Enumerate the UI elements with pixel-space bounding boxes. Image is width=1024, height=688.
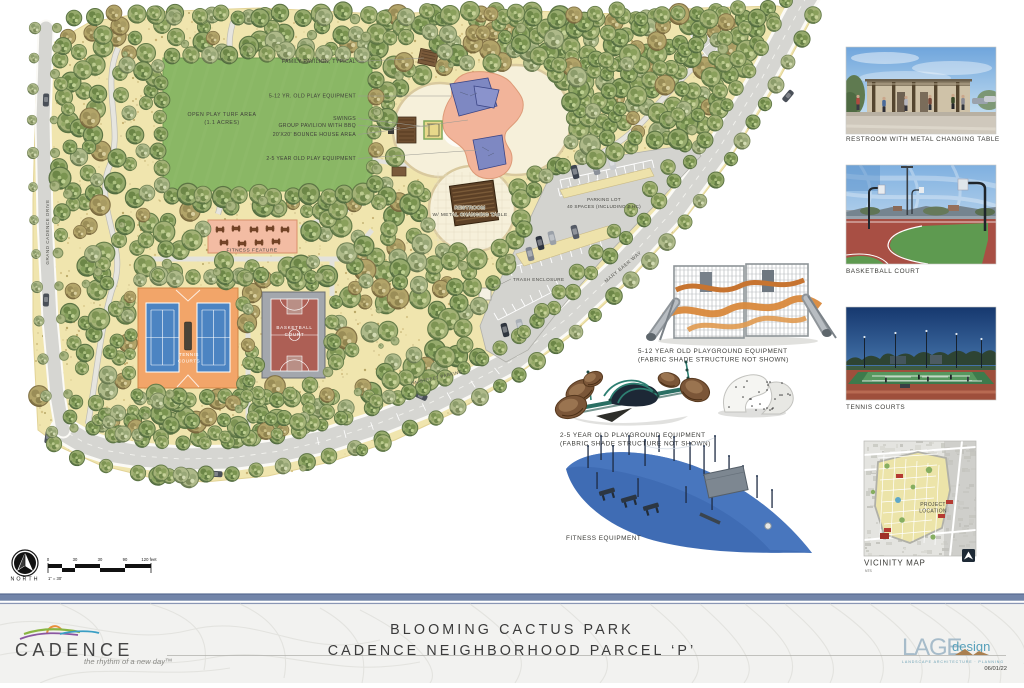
svg-text:PROJECT: PROJECT [920,502,945,508]
svg-text:the rhythm of a new day™: the rhythm of a new day™ [84,657,173,666]
svg-text:1” = 30’: 1” = 30’ [48,576,62,581]
svg-text:BASKETBALL: BASKETBALL [276,325,312,330]
svg-text:RESTROOM WITH METAL CHANGING T: RESTROOM WITH METAL CHANGING TABLE [846,136,1000,143]
svg-text:2-5 YEAR OLD PLAY EQUIPMENT: 2-5 YEAR OLD PLAY EQUIPMENT [266,156,356,162]
svg-text:5-12 YR. OLD PLAY EQUIPMENT: 5-12 YR. OLD PLAY EQUIPMENT [269,94,357,100]
svg-text:GRAND CADENCE DRIVE: GRAND CADENCE DRIVE [45,199,50,264]
svg-text:NTS: NTS [865,569,873,573]
svg-text:LANDSCAPE ARCHITECTURE · PLANN: LANDSCAPE ARCHITECTURE · PLANNING [902,660,1004,664]
svg-text:FAMILY PAVILION, TYPICAL: FAMILY PAVILION, TYPICAL [282,59,356,65]
svg-text:120 feet: 120 feet [141,557,157,562]
svg-text:FITNESS FEATURE: FITNESS FEATURE [226,248,277,254]
svg-text:NORTH: NORTH [10,577,39,583]
svg-text:(FABRIC SHADE STRUCTURE NOT SH: (FABRIC SHADE STRUCTURE NOT SHOWN) [638,357,789,364]
svg-text:W/ METAL CHANGING TABLE: W/ METAL CHANGING TABLE [432,212,507,218]
svg-text:06/01/22: 06/01/22 [984,666,1007,672]
svg-text:TRASH ENCLOSURE: TRASH ENCLOSURE [513,277,564,282]
svg-text:30: 30 [98,557,103,562]
svg-text:TENNIS: TENNIS [179,352,199,357]
svg-text:COURT: COURT [285,332,305,337]
svg-text:BASKETBALL COURT: BASKETBALL COURT [846,268,920,275]
svg-text:OPEN PLAY TURF AREA: OPEN PLAY TURF AREA [188,112,257,118]
svg-text:PARKING LOT: PARKING LOT [587,197,621,202]
svg-text:90: 90 [123,557,128,562]
svg-text:CADENCE NEIGHBORHOOD PARCEL ‘P: CADENCE NEIGHBORHOOD PARCEL ‘P’ [328,643,697,659]
svg-text:SWINGS: SWINGS [333,116,356,122]
svg-text:COURTS: COURTS [178,359,200,364]
svg-text:40 SPACES (INCLUDING 2 HC): 40 SPACES (INCLUDING 2 HC) [567,204,641,209]
svg-text:FITNESS EQUIPMENT: FITNESS EQUIPMENT [566,535,641,542]
svg-text:GROUP PAVILION WITH BBQ: GROUP PAVILION WITH BBQ [278,123,356,129]
svg-text:BLOOMING CACTUS PARK: BLOOMING CACTUS PARK [390,622,634,638]
svg-text:VICINITY MAP: VICINITY MAP [864,559,926,568]
svg-text:LOCATION: LOCATION [919,509,947,515]
svg-text:TENNIS COURTS: TENNIS COURTS [846,404,905,411]
svg-text:RESTROOM: RESTROOM [455,205,486,211]
svg-text:2-5 YEAR OLD PLAYGROUND EQUIPM: 2-5 YEAR OLD PLAYGROUND EQUIPMENT [560,432,706,439]
svg-text:30: 30 [73,557,78,562]
svg-text:(1.1 ACRES): (1.1 ACRES) [204,120,239,126]
svg-text:20'X20' BOUNCE HOUSE AREA: 20'X20' BOUNCE HOUSE AREA [273,132,357,138]
svg-text:design: design [952,639,990,654]
svg-text:5-12 YEAR OLD PLAYGROUND EQUIP: 5-12 YEAR OLD PLAYGROUND EQUIPMENT [638,348,788,355]
